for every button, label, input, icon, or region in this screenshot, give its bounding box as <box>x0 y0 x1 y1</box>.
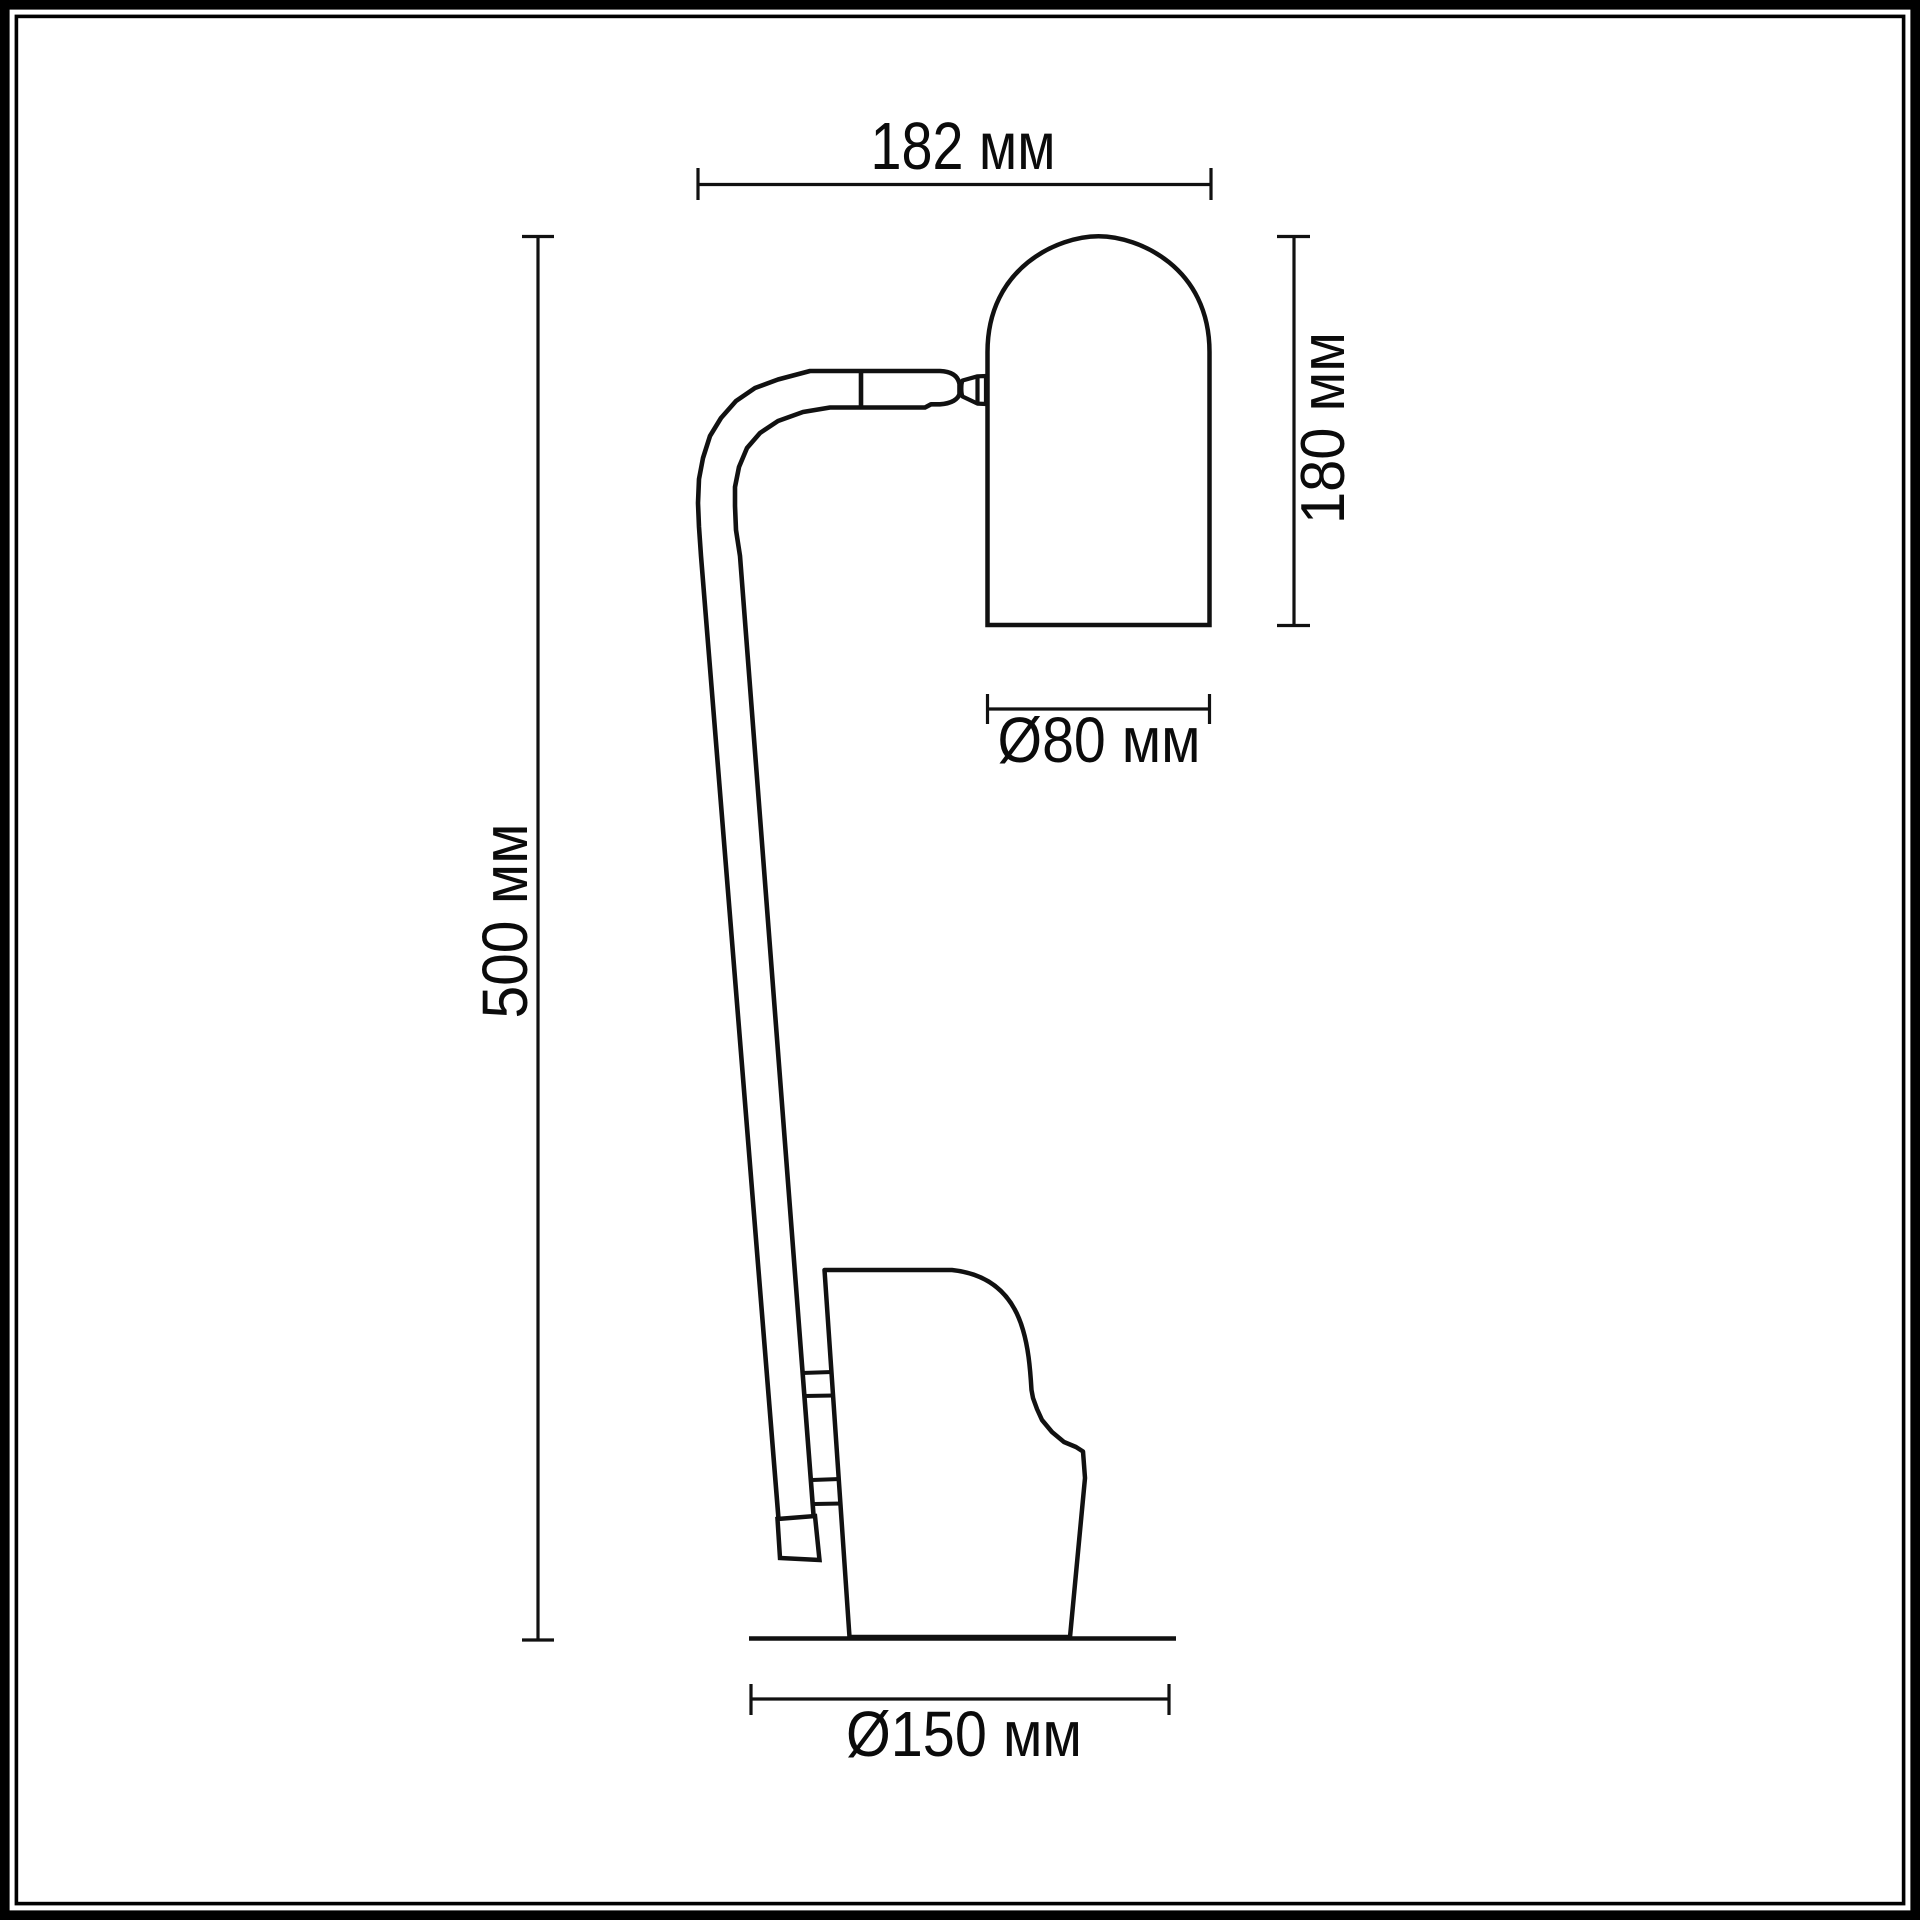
svg-text:500 мм: 500 мм <box>469 824 541 1019</box>
svg-text:Ø80 мм: Ø80 мм <box>998 704 1201 776</box>
svg-text:182 мм: 182 мм <box>871 109 1056 184</box>
svg-text:180 мм: 180 мм <box>1289 332 1358 524</box>
svg-text:Ø150 мм: Ø150 мм <box>846 1698 1082 1770</box>
